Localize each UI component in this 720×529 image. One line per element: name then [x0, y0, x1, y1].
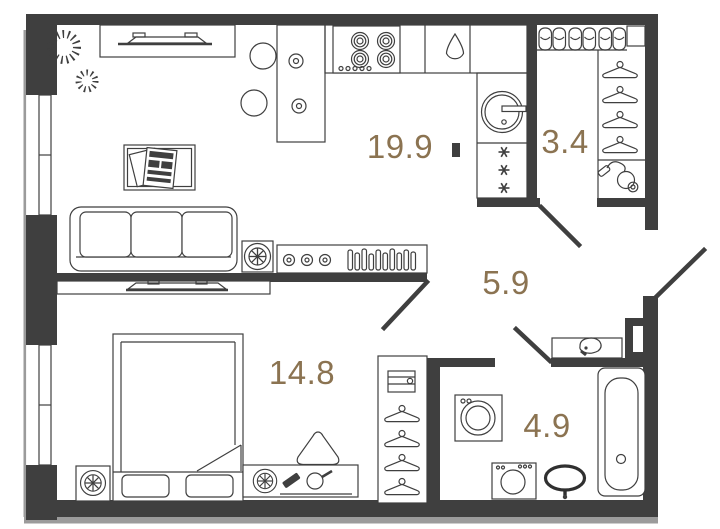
pillow-icon: [122, 475, 169, 497]
window-living: [39, 95, 51, 215]
vent-shaft-bottom: [625, 352, 643, 358]
plant-small-icon: [79, 73, 96, 90]
vacuum-cleaner-icon: [597, 162, 637, 192]
dining-table: [241, 25, 325, 142]
room-label-hallway: 5.9: [482, 264, 529, 301]
room-hallway: 5.9: [482, 264, 622, 358]
room-bedroom: 14.8: [57, 280, 427, 503]
pouf-icon: [297, 432, 339, 465]
wall-stub-kitchen: [452, 143, 460, 157]
bathroom-door-swing: [516, 329, 550, 361]
wall-left-middle: [26, 215, 57, 345]
vent-shaft-top: [625, 318, 643, 326]
wall-bottom: [26, 500, 658, 517]
media-console: [277, 245, 427, 273]
bedroom-door-swing: [384, 282, 427, 328]
chair-icon: [241, 90, 267, 116]
room-label-bedroom: 14.8: [269, 354, 335, 391]
dresser: [243, 465, 358, 497]
wall-right-upper: [645, 14, 658, 230]
nightstand-icon: [76, 466, 110, 501]
bathtub-icon: [598, 368, 645, 496]
sofa-icon: [70, 207, 237, 271]
storage-box-icon: [388, 371, 415, 392]
room-wardrobe: 3.4: [537, 28, 645, 198]
bedroom-wardrobe: [378, 356, 427, 503]
wall-wardrobe-bottom-left: [477, 198, 540, 207]
washing-machine-icon: [482, 92, 527, 133]
room-label-bathroom: 4.9: [523, 407, 570, 444]
wardrobe-door-swing: [541, 207, 579, 245]
wall-art-icon: [124, 145, 195, 190]
tv-cabinet: [100, 25, 235, 57]
stove-icon: [333, 26, 400, 73]
hanger-icons: [603, 62, 638, 153]
bathroom-sink-icon: [492, 463, 536, 499]
room-bathroom: 4.9: [455, 368, 645, 499]
wall-bathroom-top-right: [551, 358, 643, 367]
fridge-icon: [499, 147, 510, 193]
vent-shaft-left: [625, 326, 633, 356]
floor-plan-canvas: 19.9 3.4: [0, 0, 720, 529]
wall-kitchen-wardrobe: [527, 25, 537, 198]
bathroom-washing-machine-icon: [455, 395, 502, 441]
floor-plan: 19.9 3.4: [0, 0, 720, 529]
outer-trim-left: [24, 30, 27, 517]
side-table-lamp-icon: [242, 241, 273, 272]
kitchen-sink-icon: [447, 34, 464, 59]
room-label-wardrobe: 3.4: [541, 123, 588, 160]
niche-top-right: [627, 26, 645, 46]
bed-icon: [113, 334, 243, 501]
toilet-icon: [546, 466, 585, 499]
window-bedroom: [39, 345, 51, 465]
entrance-door-swing: [657, 250, 704, 296]
slippers-icon: [539, 28, 626, 50]
chair-icon: [250, 43, 276, 69]
pillow-icon: [186, 475, 233, 497]
wall-bathroom-left: [427, 358, 440, 500]
wall-top: [26, 14, 658, 25]
bedroom-tv-console: [57, 280, 270, 294]
wall-wardrobe-bottom-right: [597, 198, 645, 207]
hall-console: [552, 338, 622, 358]
room-label-kitchen-living: 19.9: [367, 128, 433, 165]
outer-trim-bottom: [24, 517, 658, 524]
